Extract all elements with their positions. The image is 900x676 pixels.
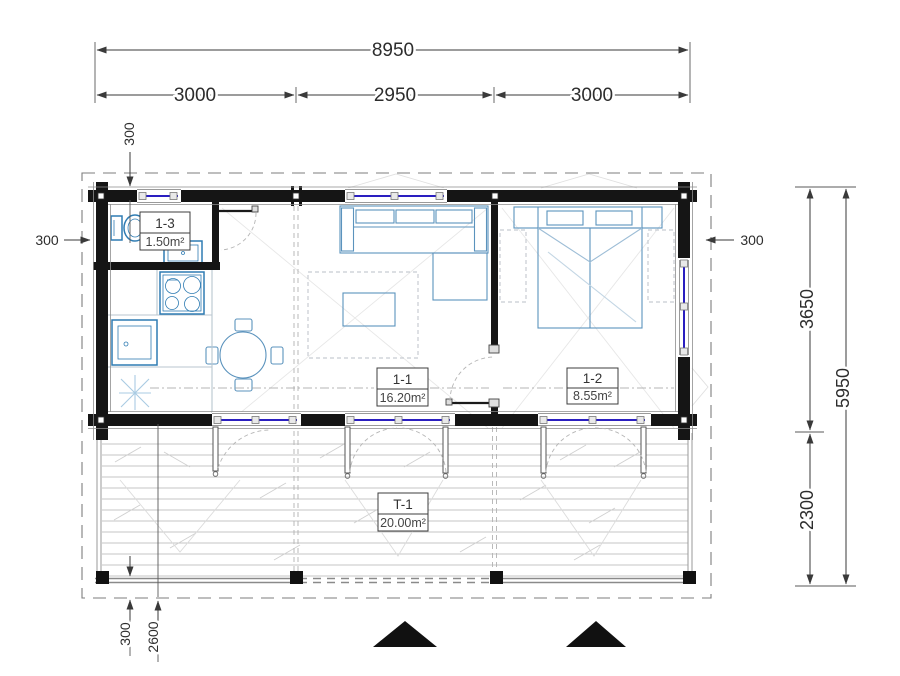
sofa (340, 206, 488, 300)
dim-offset-right: 300 (706, 232, 764, 248)
entrance-arrow-icon (566, 621, 626, 647)
bathroom-area: 1.50m² (146, 235, 185, 249)
living-room-rug (308, 272, 418, 358)
bathroom-label: 1-3 1.50m² (140, 212, 190, 250)
bedside-rug-left (500, 230, 526, 302)
floor-plan-drawing: 1-3 1.50m² 1-1 16.20m² 1-2 8.55m² T-1 20… (0, 0, 900, 676)
dim-terrace-depth-label: 2300 (797, 490, 817, 530)
dim-offset-right-label: 300 (740, 232, 764, 248)
dim-module-mid-label: 2950 (374, 85, 416, 106)
bedroom-id: 1-2 (583, 371, 603, 386)
dim-module-mid: 2950 (298, 85, 492, 106)
terrace-beam (95, 571, 696, 584)
wall-south-seg3 (452, 414, 538, 426)
wall-bathroom-east (212, 202, 219, 268)
bedroom-area: 8.55m² (573, 389, 612, 403)
dim-overall-depth-label: 5950 (833, 368, 853, 408)
living-id: 1-1 (393, 372, 413, 387)
dim-house-depth-label: 3650 (797, 289, 817, 329)
kitchen-glazed-door (212, 412, 301, 428)
floor-plan-page: 1-3 1.50m² 1-1 16.20m² 1-2 8.55m² T-1 20… (0, 0, 900, 676)
construction-lines (222, 174, 708, 428)
dim-terrace-span-label: 2600 (145, 621, 161, 652)
floor-drain-symbol (119, 375, 151, 410)
terrace-id: T-1 (393, 497, 413, 512)
bathroom-id: 1-3 (155, 216, 175, 231)
entrance-arrow-icon (373, 621, 437, 647)
wall-east-lower (678, 355, 690, 440)
terrace-area: 20.00m² (380, 516, 426, 530)
bedside-rug-right (648, 230, 674, 302)
bathroom-window (137, 188, 181, 204)
bed (514, 207, 662, 328)
wall-south-seg2 (300, 414, 348, 426)
log-joint-tick (299, 186, 302, 206)
living-room-window (345, 188, 447, 204)
bathroom-door (219, 206, 258, 250)
terrace-label: T-1 20.00m² (378, 493, 428, 531)
dim-terrace-depth: 2300 (797, 434, 817, 584)
wall-bathroom-south (93, 262, 220, 270)
dimensions: 8950 3000 2950 3000 300 300 300 (35, 40, 856, 662)
kitchen-appliance (112, 320, 157, 365)
dim-module-left: 3000 (97, 85, 294, 106)
bedroom-terrace-door (538, 412, 651, 428)
entrance-markers (373, 621, 626, 647)
dining-table (206, 319, 283, 391)
dim-overall-width: 8950 (97, 40, 688, 61)
living-area: 16.20m² (380, 391, 426, 405)
dim-module-left-label: 3000 (174, 85, 216, 106)
wall-west (96, 182, 108, 440)
wall-bedroom-partition (491, 202, 498, 352)
dim-terrace-offset-label: 300 (117, 622, 133, 646)
living-terrace-door (345, 412, 455, 428)
bedroom-label: 1-2 8.55m² (567, 368, 618, 404)
bedroom-door (446, 345, 499, 407)
dim-house-depth: 3650 (797, 189, 817, 430)
dim-offset-top-label: 300 (121, 122, 137, 146)
dim-overall-depth: 5950 (833, 189, 853, 584)
interior-doors (219, 206, 499, 407)
stove (160, 272, 204, 314)
dim-overall-width-label: 8950 (372, 40, 414, 61)
dim-terrace-offset: 300 (117, 556, 133, 656)
living-label: 1-1 16.20m² (377, 368, 428, 406)
dim-module-right-label: 3000 (571, 85, 613, 106)
dim-offset-top: 300 (121, 122, 137, 243)
bedroom-window (676, 258, 692, 357)
dim-offset-left-label: 300 (35, 232, 59, 248)
dim-module-right: 3000 (496, 85, 688, 106)
